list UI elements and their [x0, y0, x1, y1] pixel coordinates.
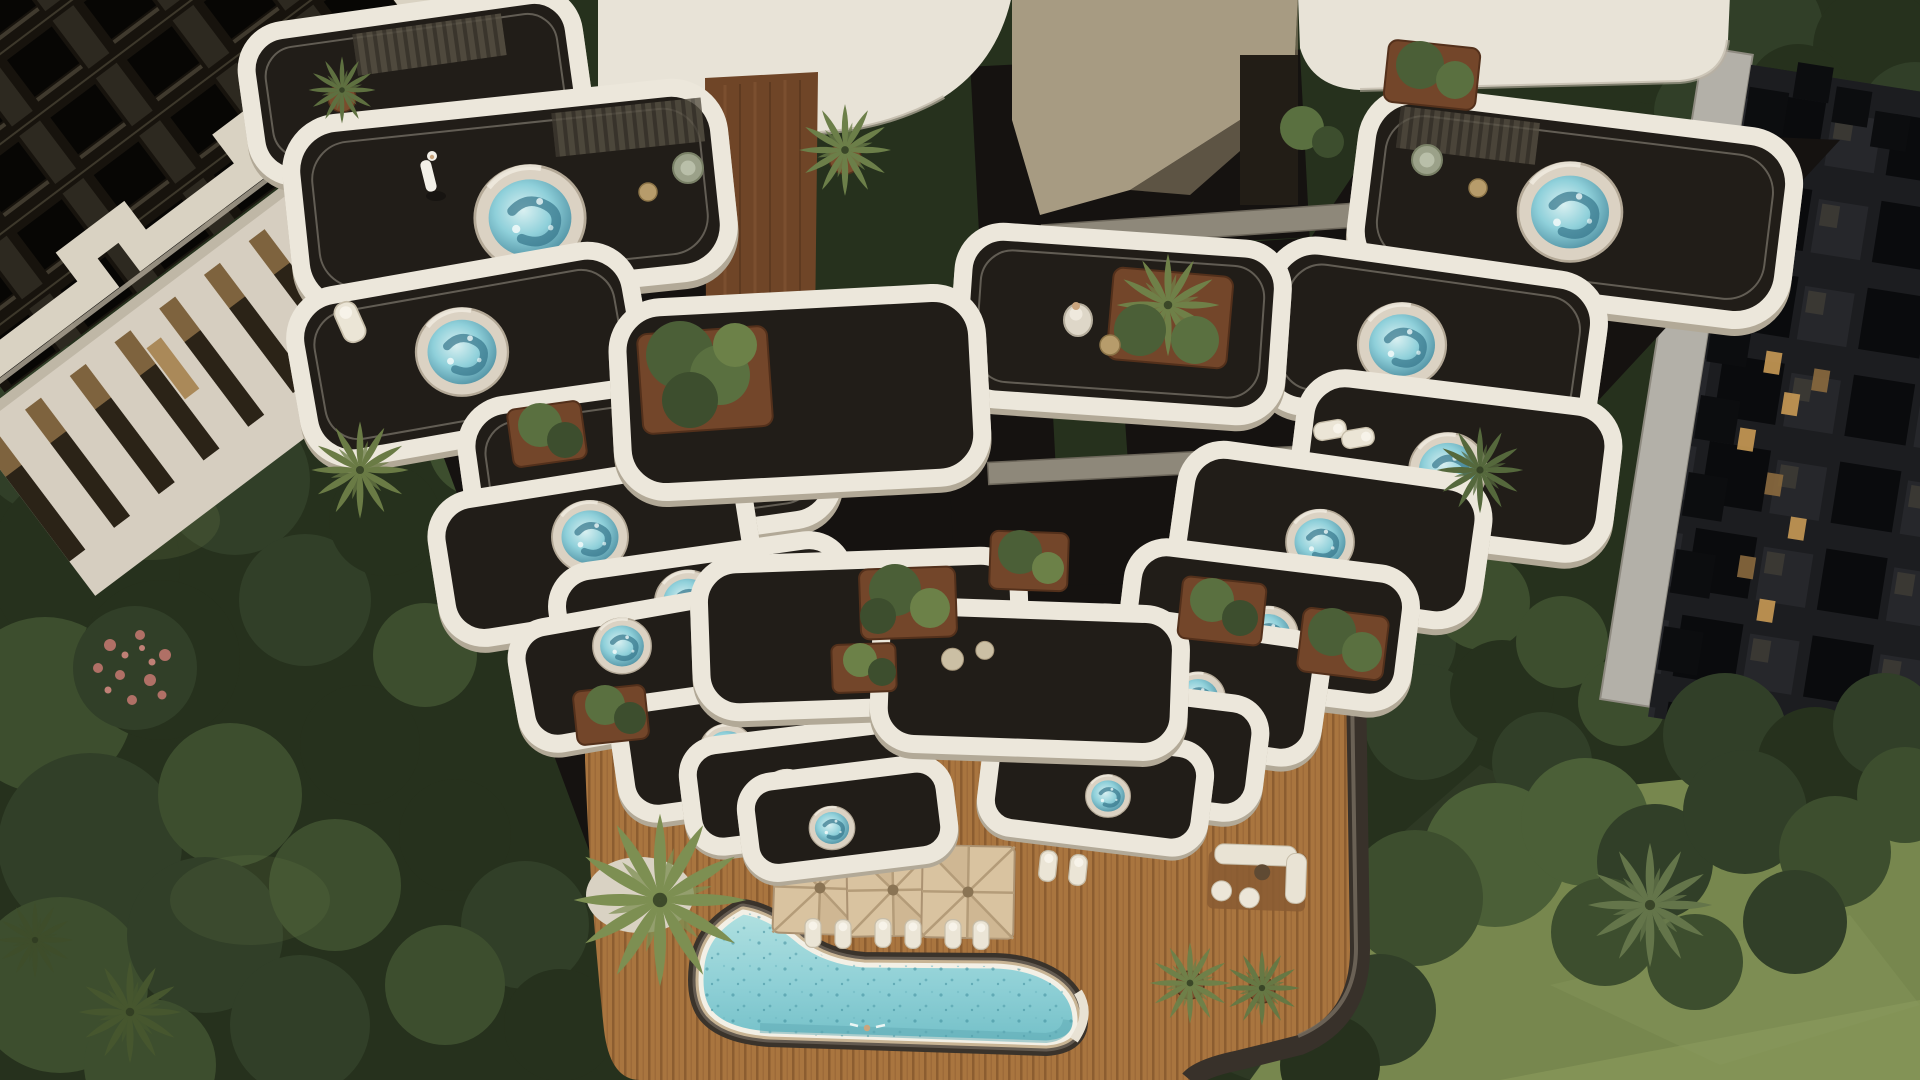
jacuzzi	[1518, 163, 1622, 262]
side-table	[639, 183, 657, 201]
jacuzzi	[809, 806, 855, 849]
lounge-chair	[1239, 887, 1260, 908]
jacuzzi	[416, 308, 508, 395]
jacuzzi	[1086, 775, 1131, 818]
lounge-chair	[1211, 880, 1232, 901]
aerial-render-stage	[0, 0, 1920, 1080]
side-table	[1469, 179, 1487, 197]
balcony-armchair	[673, 153, 703, 183]
balcony-armchair	[1412, 145, 1442, 175]
jacuzzi	[593, 618, 651, 673]
sofa	[1214, 844, 1297, 867]
flowering-tree	[73, 606, 197, 730]
sofa	[1285, 853, 1307, 904]
roof-canopy-right	[1298, 0, 1730, 90]
aerial-render	[0, 0, 1920, 1080]
deck-lounge-set	[1207, 843, 1307, 911]
